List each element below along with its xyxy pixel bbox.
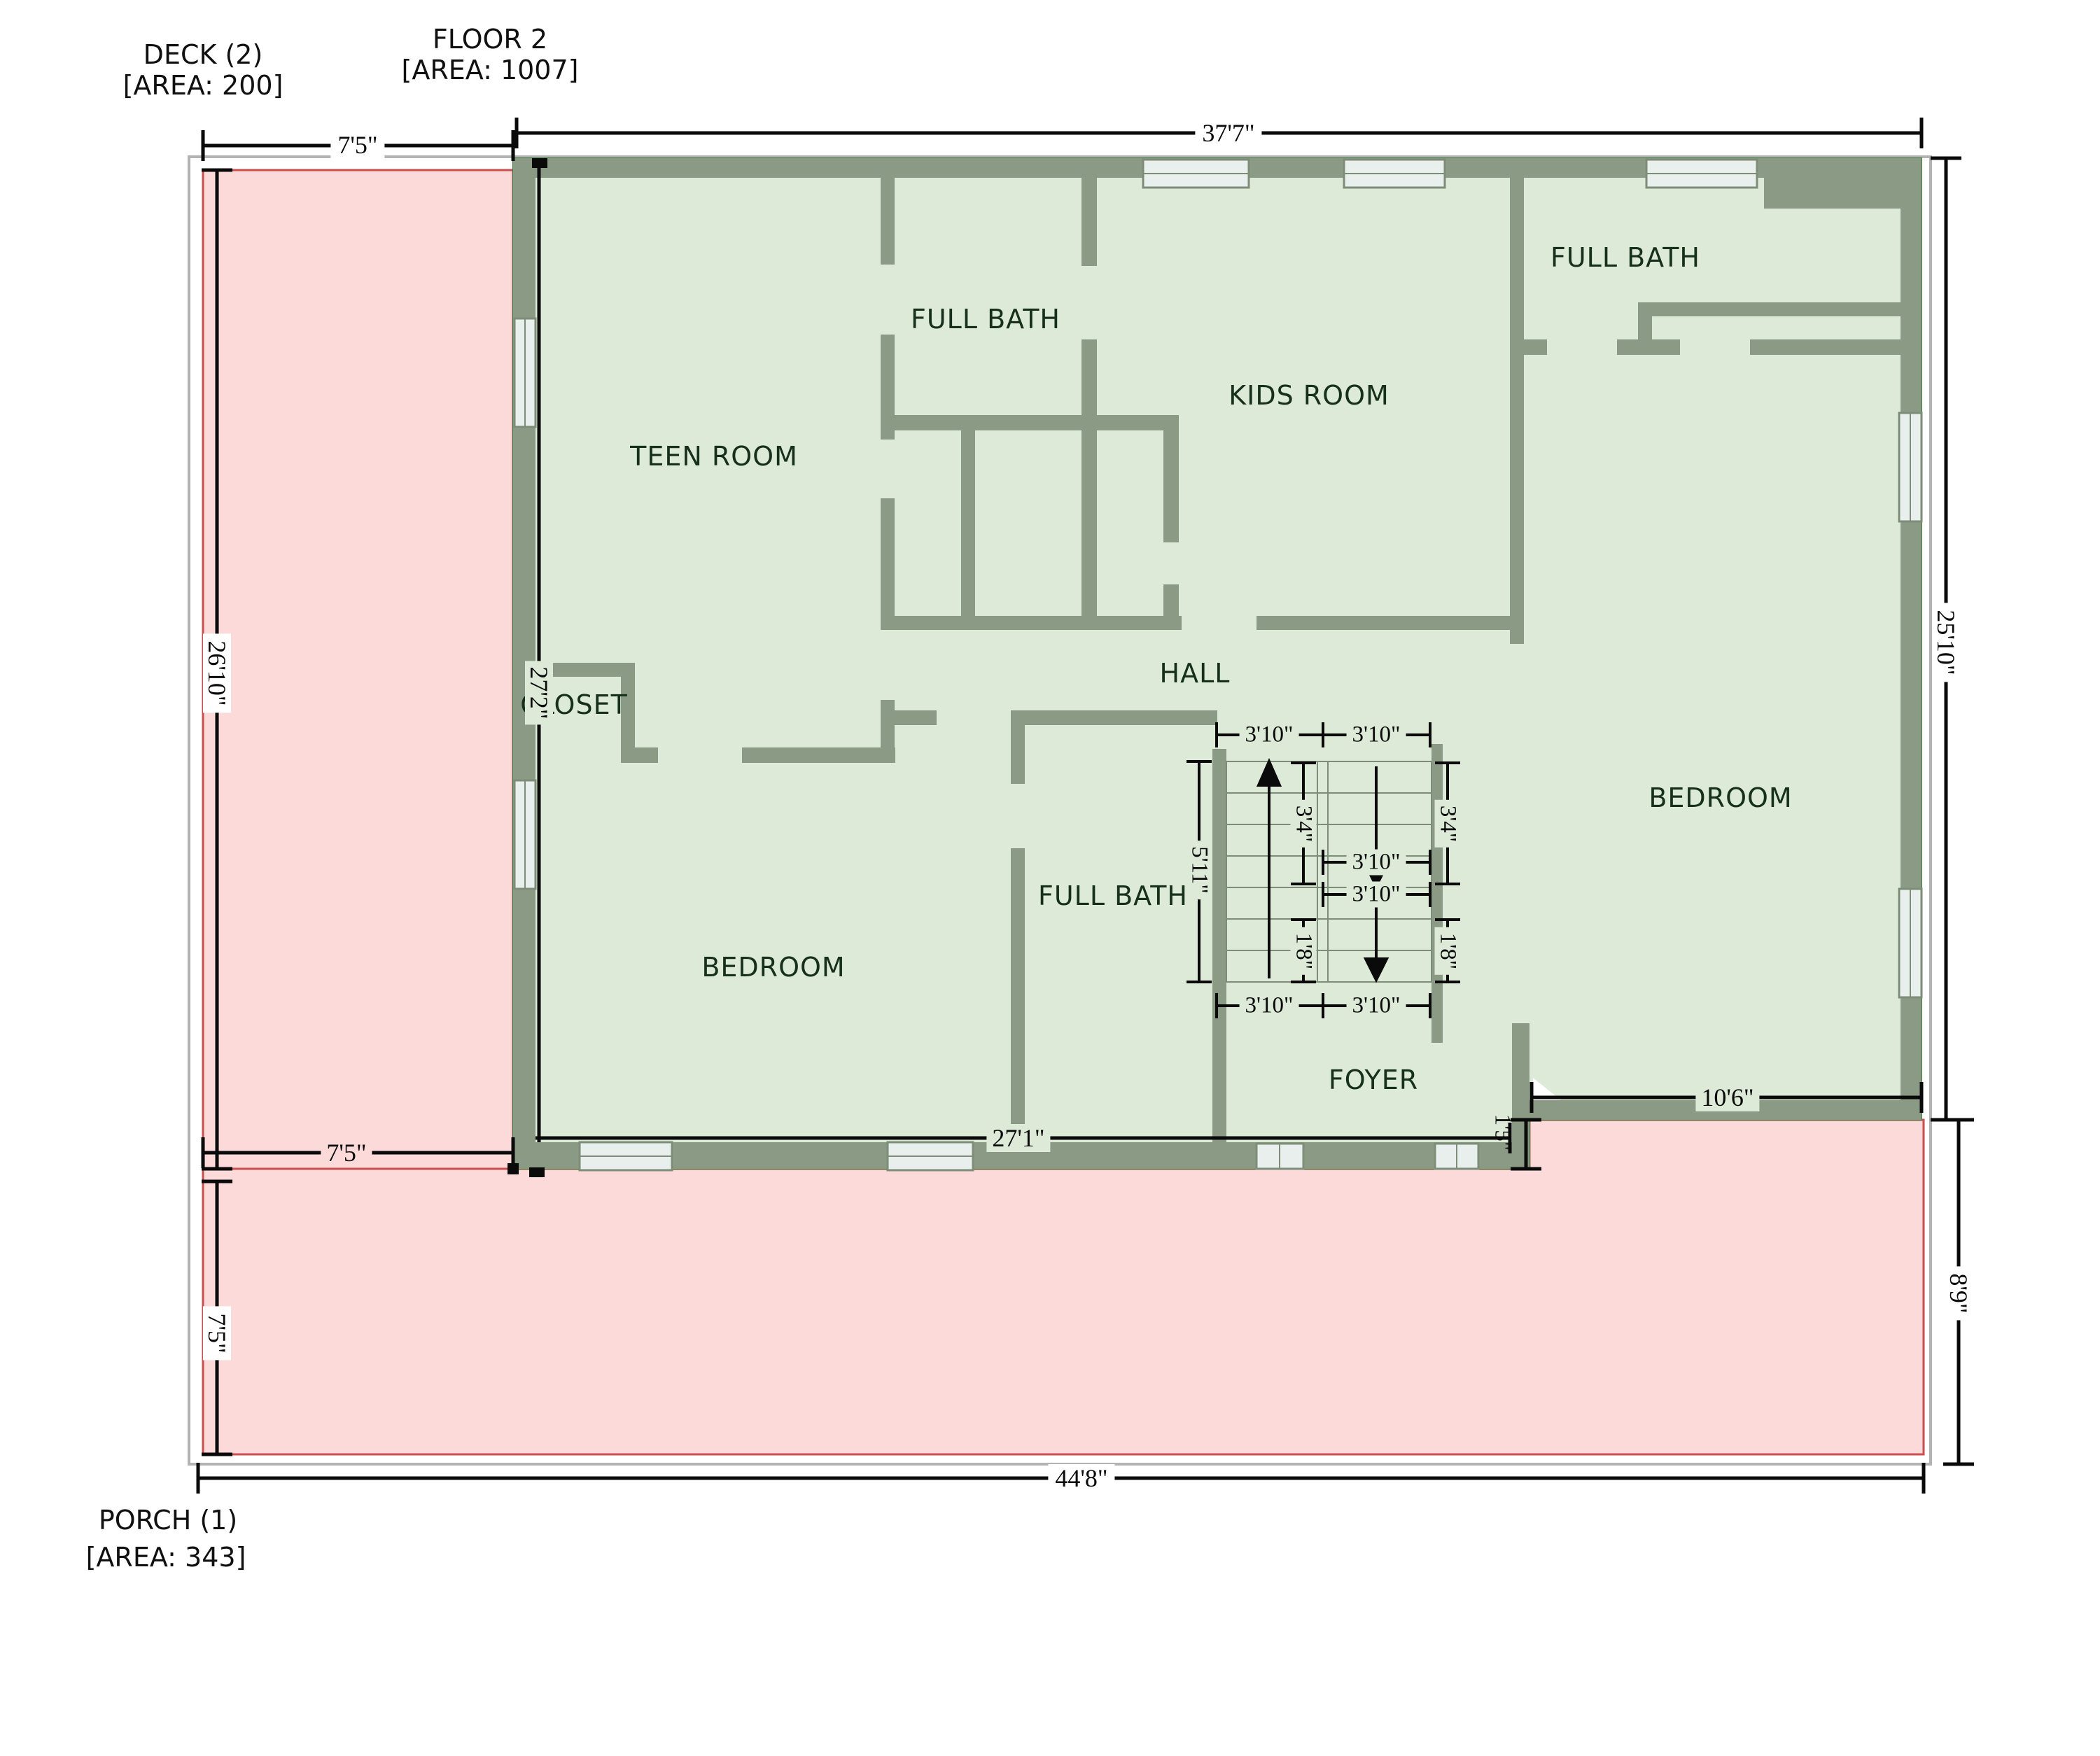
room-label-bedroom-left: BEDROOM <box>701 952 845 983</box>
wall-north-east-notch <box>1764 178 1921 209</box>
dim-stair-bottom-right: 3'10" <box>1347 993 1406 1019</box>
porch-area-label: [AREA: 343] <box>86 1544 246 1571</box>
dim-deck-width-bottom: 7'5" <box>321 1139 372 1167</box>
wall-stair-left <box>1212 749 1226 1142</box>
room-label-bedroom-right: BEDROOM <box>1648 782 1792 813</box>
dim-stair-mid-lower: 3'10" <box>1347 882 1406 908</box>
dim-stair-right-run: 3'4" <box>1435 800 1461 848</box>
porch-title: PORCH (1) <box>99 1507 237 1533</box>
dim-interior-width: 27'1" <box>986 1124 1050 1152</box>
dim-stair-mid-upper: 3'10" <box>1347 850 1406 876</box>
dim-porch-width: 44'8" <box>1048 1464 1114 1492</box>
corner-tick <box>507 1163 519 1174</box>
room-label-hall: HALL <box>1160 658 1231 689</box>
dim-stair-right-landing: 1'8" <box>1435 927 1461 975</box>
floor-plan-canvas <box>0 0 2100 1756</box>
dim-porch-right: 8'9" <box>1945 1266 1973 1320</box>
room-label-full-bath-top: FULL BATH <box>911 304 1060 335</box>
dim-step: 1'5" <box>1491 1114 1514 1151</box>
deck-title: DECK (2) <box>143 41 263 68</box>
dim-stair-bottom-left: 3'10" <box>1240 993 1299 1019</box>
room-label-kids-room: KIDS ROOM <box>1228 380 1389 411</box>
dim-stair-length: 5'11" <box>1186 841 1212 899</box>
floor-title: FLOOR 2 <box>433 26 547 52</box>
room-label-teen-room: TEEN ROOM <box>630 441 798 472</box>
room-label-full-bath-mid: FULL BATH <box>1038 880 1188 911</box>
dim-stair-top-left: 3'10" <box>1240 722 1299 748</box>
room-label-full-bath-right: FULL BATH <box>1550 242 1700 273</box>
wall-stair-right <box>1431 744 1443 1043</box>
dim-deck-width-top: 7'5" <box>330 131 384 159</box>
dim-stair-left-run: 3'4" <box>1291 800 1317 848</box>
dim-stair-left-landing: 1'8" <box>1291 927 1317 975</box>
dim-floor-width: 37'7" <box>1195 119 1261 147</box>
dim-right-height: 25'10" <box>1932 603 1960 682</box>
deck-area-label: [AREA: 200] <box>123 72 283 99</box>
porch-area <box>203 1120 1924 1454</box>
dim-interior-height: 27'2" <box>525 661 553 724</box>
dim-stair-top-right: 3'10" <box>1347 722 1406 748</box>
dim-porch-left: 7'5" <box>203 1306 231 1360</box>
floor-plan-page: DECK (2) [AREA: 200] FLOOR 2 [AREA: 1007… <box>0 0 2100 1756</box>
dim-deck-height: 26'10" <box>203 633 231 712</box>
dim-bedroom-right-width: 10'6" <box>1695 1083 1759 1111</box>
room-label-foyer: FOYER <box>1329 1065 1418 1095</box>
deck-area <box>203 170 513 1169</box>
floor-area-label: [AREA: 1007] <box>402 57 579 83</box>
